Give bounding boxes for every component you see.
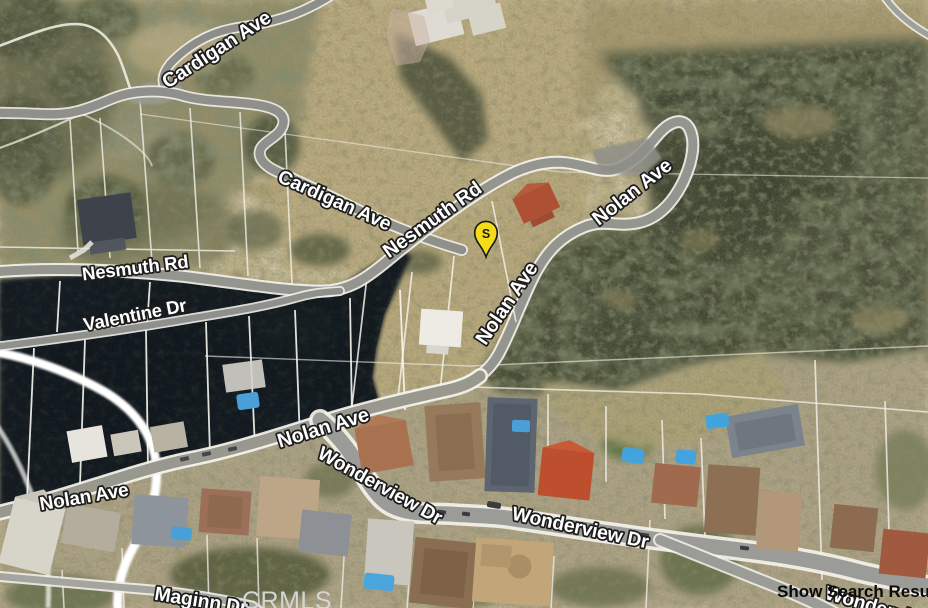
svg-text:S: S xyxy=(482,227,490,241)
svg-text:CRMLS: CRMLS xyxy=(242,587,332,608)
svg-text:Show Search Result: Show Search Result xyxy=(777,582,928,601)
